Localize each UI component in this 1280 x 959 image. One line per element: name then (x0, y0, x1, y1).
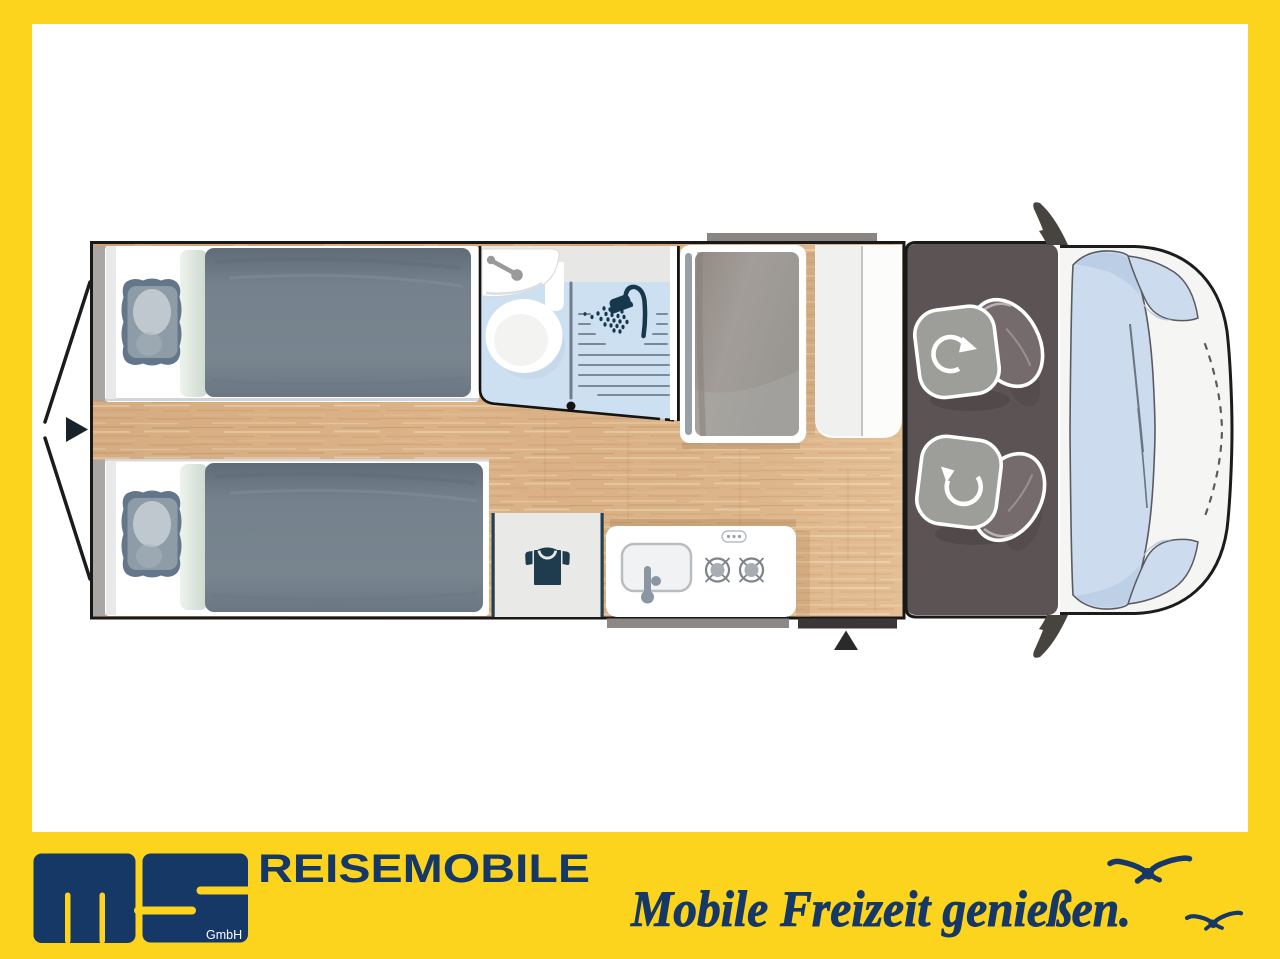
svg-text:GmbH: GmbH (206, 928, 242, 942)
svg-text:Mobile Freizeit genießen.: Mobile Freizeit genießen. (630, 882, 1131, 938)
svg-text:REISEMOBILE: REISEMOBILE (258, 847, 590, 891)
